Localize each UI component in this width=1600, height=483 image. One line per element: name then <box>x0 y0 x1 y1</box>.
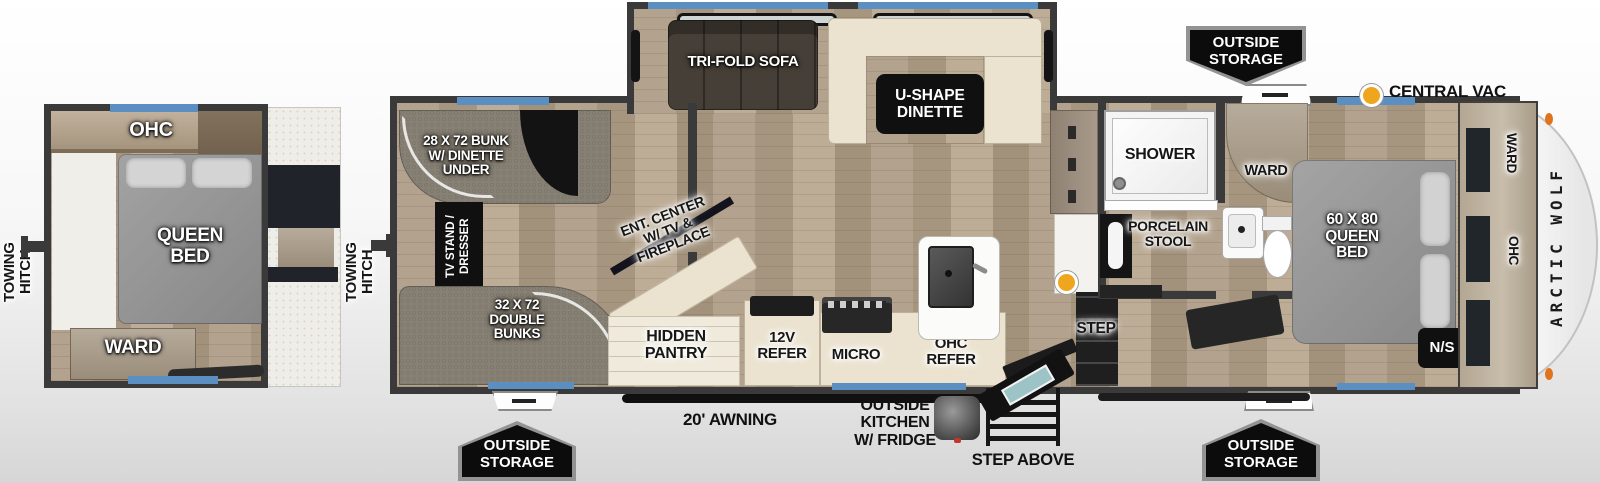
outside-storage-badge-bottom-left: OUTSIDE STORAGE <box>458 421 576 481</box>
micro-label: MICRO <box>816 347 896 363</box>
front-ohc-label: OHC <box>1496 226 1520 276</box>
outside-storage-label: OUTSIDE STORAGE <box>1209 35 1283 69</box>
step-above-label: STEP ABOVE <box>958 452 1088 470</box>
slide-side-window-right <box>1044 30 1053 82</box>
badge-face: OUTSIDE STORAGE <box>1190 30 1302 82</box>
bath-threshold <box>1100 285 1162 298</box>
mini-tv-cabinet <box>268 165 340 228</box>
outside-storage-label: OUTSIDE STORAGE <box>480 438 554 472</box>
drawer-pull-3 <box>1068 190 1076 203</box>
baggage-door-bl-handle <box>512 399 536 403</box>
sink-drain <box>945 270 952 277</box>
island-sink <box>928 246 974 308</box>
floorplan-canvas: TOWING HITCH OHC QUEEN BED WARD TOWING H… <box>0 0 1600 483</box>
mini-queen-bed-label: QUEEN BED <box>148 226 232 267</box>
mini-pillow-right <box>192 158 252 188</box>
mini-ward-label: WARD <box>88 338 178 359</box>
refer-12v-top <box>750 296 814 316</box>
entry-step-platform <box>1076 292 1118 386</box>
window-kitchen-bottom <box>832 383 966 390</box>
wardrobe-panel-top <box>1466 128 1490 192</box>
skirt-bar-right <box>1098 393 1310 401</box>
refer-12v-label: 12V REFER <box>744 330 820 362</box>
window-top-left <box>457 97 549 105</box>
hidden-pantry-label: HIDDEN PANTRY <box>618 328 734 363</box>
dinette-seat-right <box>984 56 1042 144</box>
mini-window-top <box>110 104 198 112</box>
mini-corner-cabinet <box>198 111 262 159</box>
double-bunks-label: 32 X 72 DOUBLE BUNKS <box>462 298 572 342</box>
tv-stand-dresser: TV STAND / DRESSER <box>435 202 483 292</box>
bed-pillow-bottom <box>1420 254 1450 328</box>
outside-storage-badge-top: OUTSIDE STORAGE <box>1186 26 1306 86</box>
bunk-partition-top <box>688 103 697 203</box>
shower-head <box>1113 177 1126 190</box>
vanity-faucet <box>1238 226 1245 233</box>
fridge-valve <box>954 438 961 443</box>
main-towing-hitch-label: TOWING HITCH <box>344 224 386 320</box>
cooktop-burners <box>828 301 886 308</box>
wardrobe-panel-mid <box>1466 216 1490 282</box>
mini-floor-lino <box>52 152 116 330</box>
toilet-bowl <box>1263 230 1292 278</box>
drawer-pull-1 <box>1068 126 1076 139</box>
badge-face: OUTSIDE STORAGE <box>1206 423 1316 477</box>
slide-window-strip-left <box>648 2 828 9</box>
awning-label: 20' AWNING <box>660 411 800 429</box>
step-tread-3 <box>989 424 1057 429</box>
u-shape-dinette-label: U-SHAPE DINETTE <box>876 74 984 134</box>
shower-ward-divider <box>1216 103 1225 203</box>
mini-ohc-label: OHC <box>116 120 186 142</box>
central-vac-dot <box>1055 271 1078 294</box>
step-label: STEP <box>1052 321 1140 338</box>
ohc-refer-label: OHC REFER <box>900 336 1002 368</box>
tv-stand-dresser-label: TV STAND / DRESSER <box>445 215 473 278</box>
outside-storage-badge-bottom-right: OUTSIDE STORAGE <box>1202 419 1320 481</box>
wardrobe-panel-bottom <box>1466 300 1490 366</box>
toilet-tank <box>1262 216 1292 231</box>
window-bunk-bottom <box>488 382 574 389</box>
mini-window-bottom <box>128 376 218 384</box>
slide-window-strip-right <box>858 2 1038 9</box>
mini-hitch-post <box>21 236 28 257</box>
mini-tv-shelf <box>260 267 338 282</box>
shower-door <box>1104 200 1218 211</box>
entry-steps <box>986 388 1064 448</box>
central-vac-label: CENTRAL VAC <box>1389 83 1519 101</box>
baggage-door-top-handle <box>1262 93 1288 97</box>
slide-side-window-left <box>631 30 640 82</box>
brand-text: ARCTIC WOLF <box>1548 118 1576 376</box>
outside-kitchen-fridge <box>934 396 980 440</box>
mini-pillow-left <box>126 158 186 188</box>
queen-bed-label: 60 X 80 QUEEN BED <box>1300 212 1404 262</box>
window-bedroom-bottom <box>1337 383 1415 390</box>
badge-face: OUTSIDE STORAGE <box>462 425 572 477</box>
mini-slideout-wood <box>278 228 334 268</box>
bunk-top-label: 28 X 72 BUNK W/ DINETTE UNDER <box>404 134 528 178</box>
porcelain-stool-label: PORCELAIN STOOL <box>1120 219 1216 249</box>
step-tread-4 <box>989 436 1057 441</box>
bed-pillow-top <box>1420 172 1450 246</box>
outside-storage-label: OUTSIDE STORAGE <box>1224 438 1298 472</box>
drawer-pull-2 <box>1068 158 1076 171</box>
front-ward-label: WARD <box>1494 124 1518 182</box>
central-vac-legend-dot <box>1360 84 1383 107</box>
shower-label: SHOWER <box>1104 146 1216 163</box>
tri-fold-sofa-label: TRI-FOLD SOFA <box>668 54 818 70</box>
